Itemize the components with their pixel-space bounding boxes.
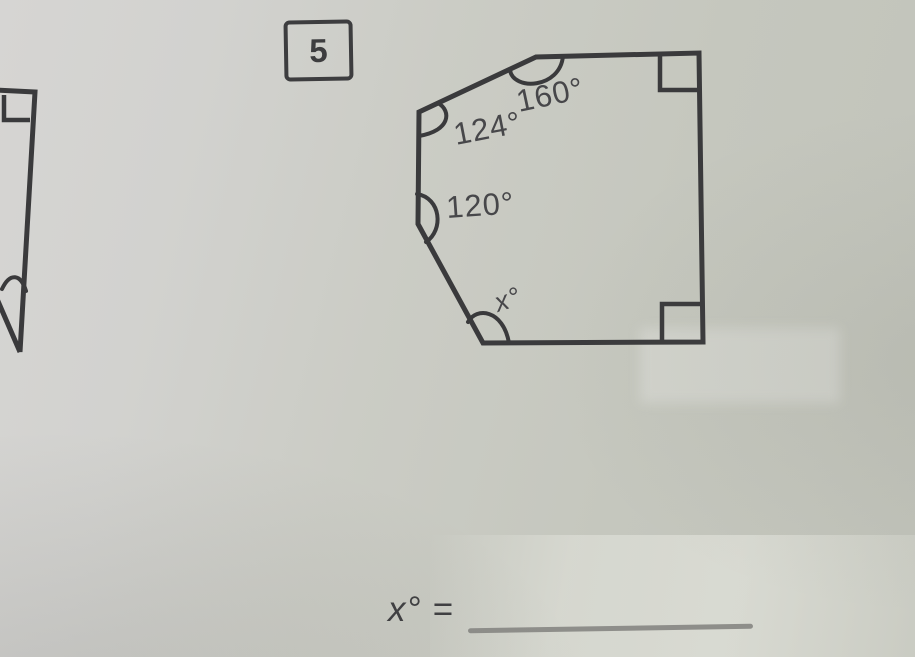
angle-label-120: 120°: [445, 185, 515, 225]
right-angle-marker-bottom-right: [662, 304, 704, 344]
partial-angle-label: x°: [0, 265, 14, 302]
right-angle-marker-partial: [4, 95, 30, 120]
answer-prompt: x° =: [388, 590, 454, 630]
figure-layer: x° 160° 124° 120° x°: [0, 0, 915, 657]
partial-figure-left: x°: [0, 90, 35, 352]
partial-figure-outline: [0, 90, 35, 352]
worksheet-photo: 5 x° 160° 124° 120° x° x° =: [0, 0, 915, 657]
problem-5-figure: 160° 124° 120° x°: [417, 53, 704, 344]
angle-label-160: 160°: [513, 70, 587, 118]
angle-label-124: 124°: [451, 105, 525, 152]
angle-label-x: x°: [489, 281, 525, 318]
right-angle-marker-top-right: [660, 55, 701, 90]
